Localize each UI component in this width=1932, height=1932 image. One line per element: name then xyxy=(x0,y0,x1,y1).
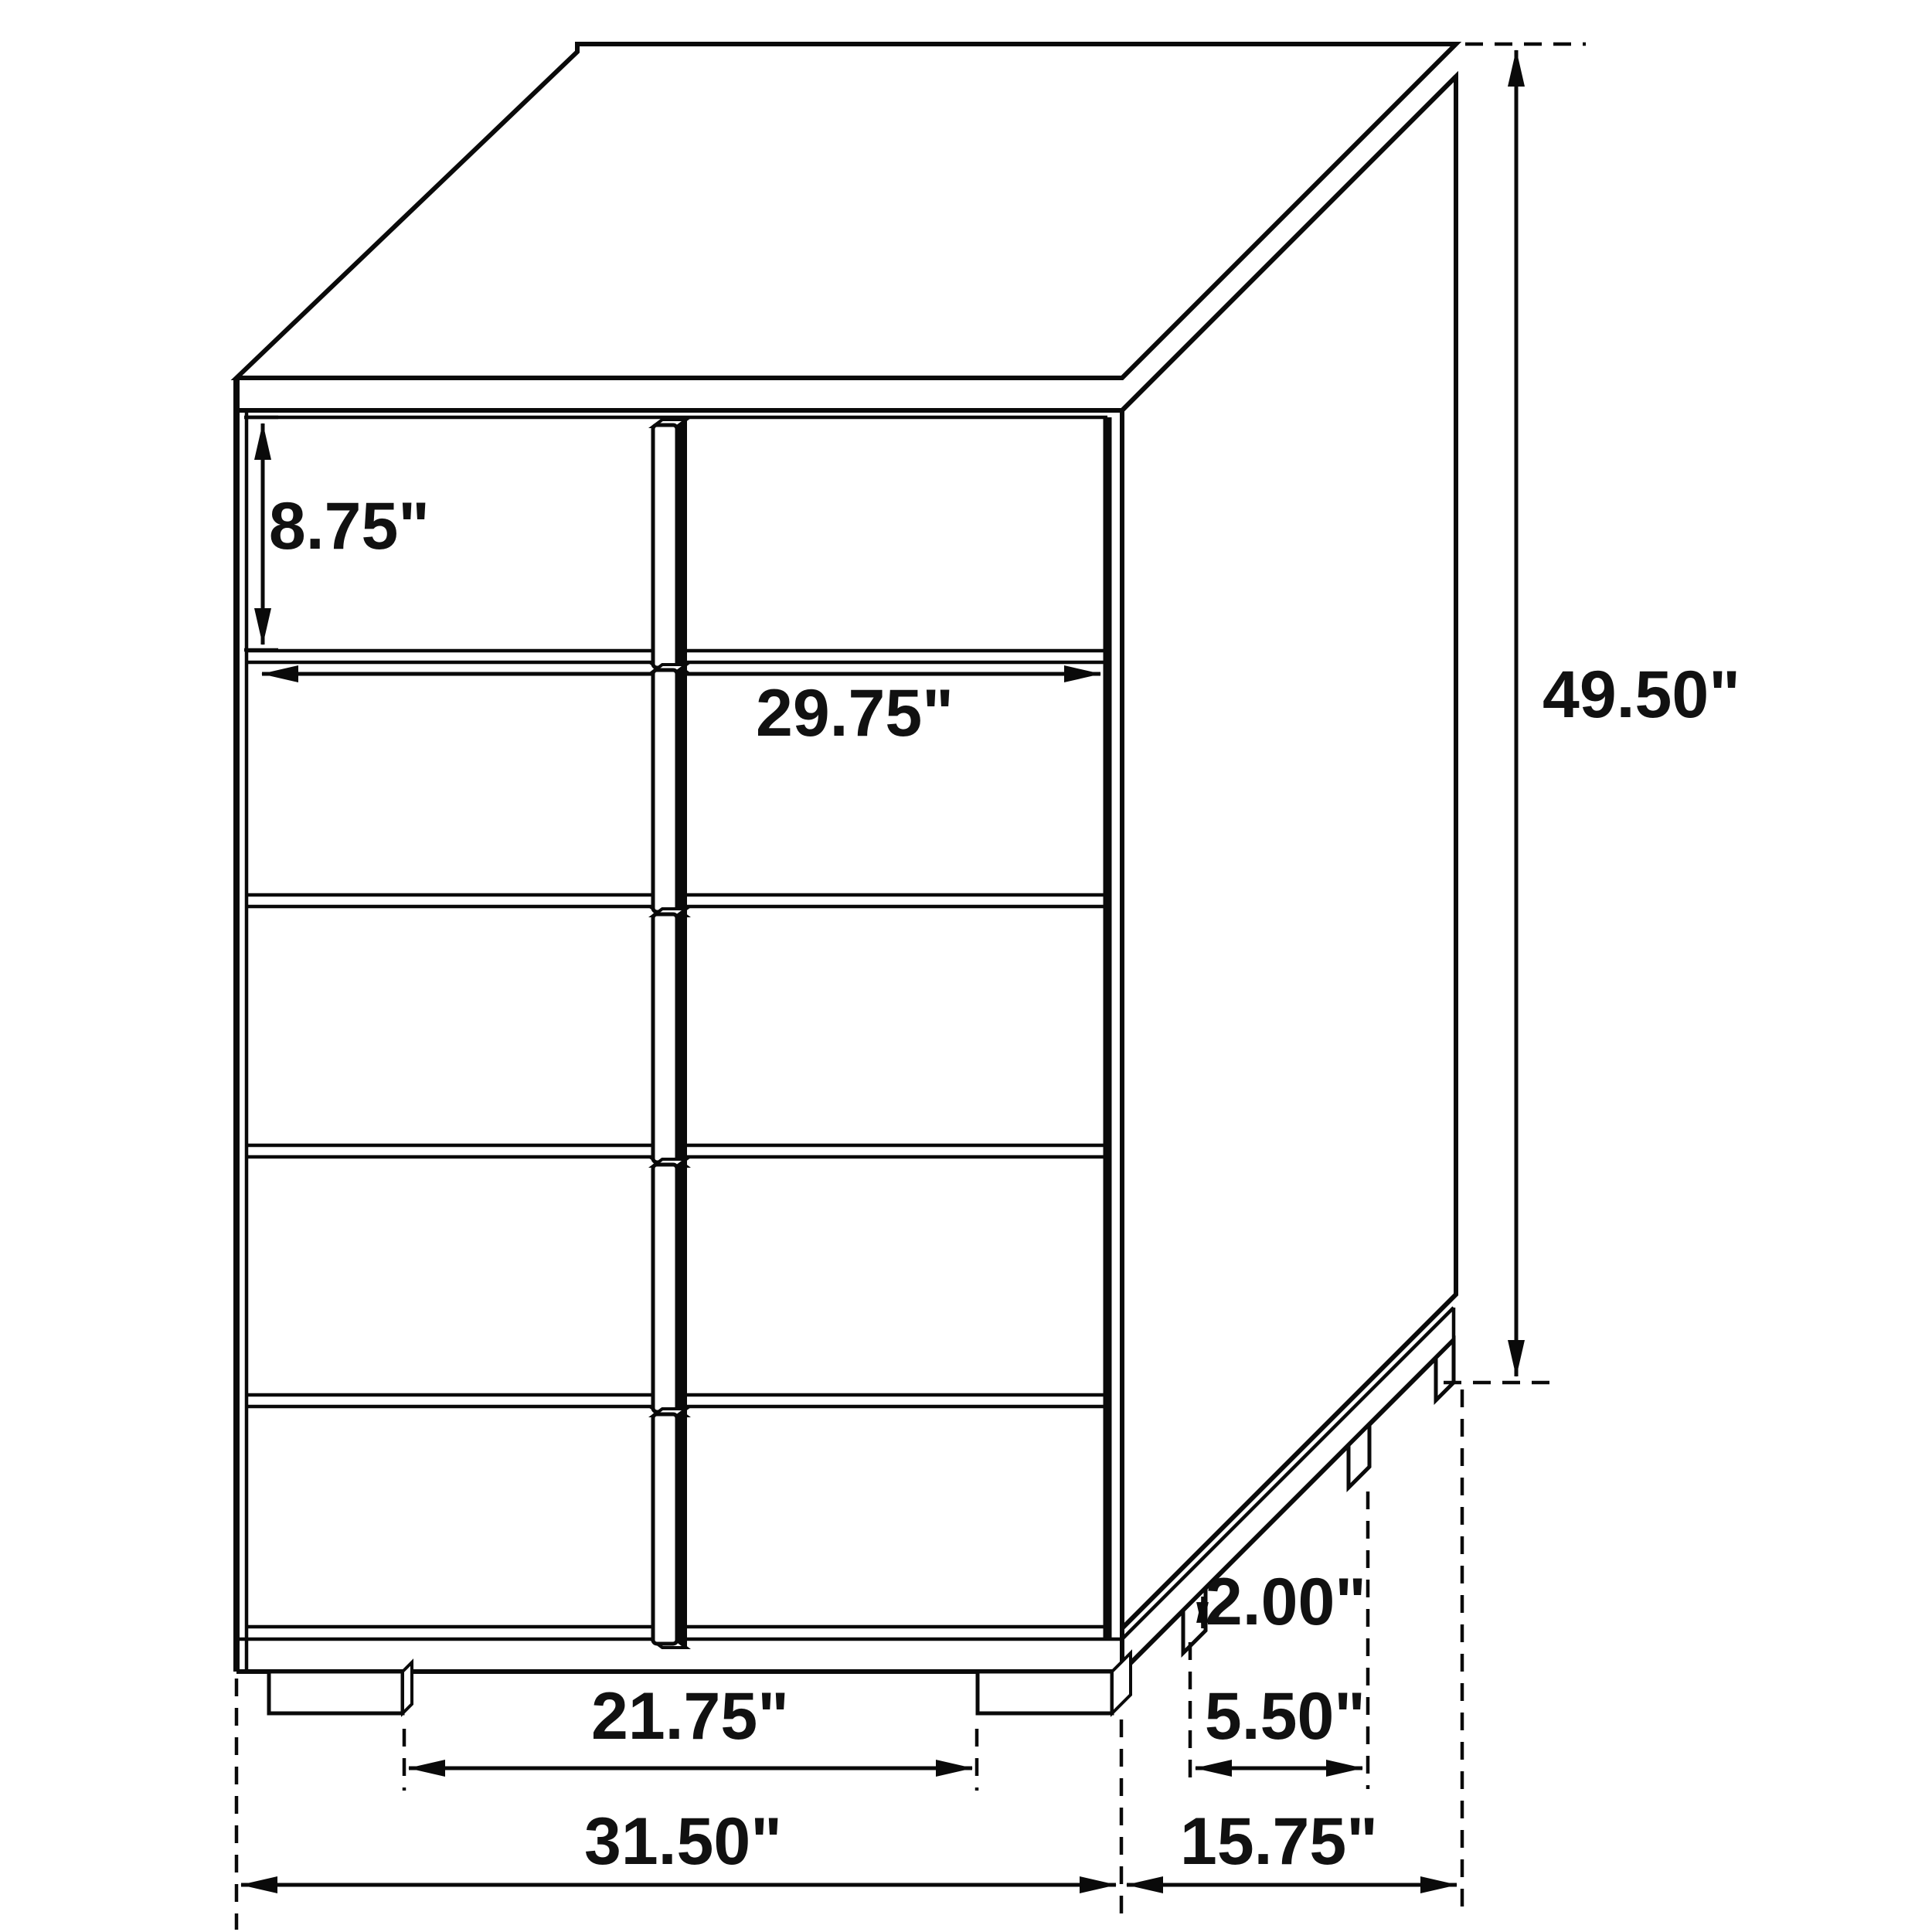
drawer-handle-2 xyxy=(653,665,687,917)
dim-front-leg-spacing-label: 21.75" xyxy=(591,1679,789,1753)
front-right-leg xyxy=(978,1672,1112,1713)
dim-overall-width-label: 31.50" xyxy=(584,1804,782,1879)
background xyxy=(0,0,1932,1932)
drawer-handle-3 xyxy=(653,909,687,1167)
dim-leg-height-label: 2.00" xyxy=(1206,1565,1366,1639)
dim-side-leg-spacing-label: 5.50" xyxy=(1205,1679,1366,1753)
dim-leg-height: 2.00" xyxy=(1202,1565,1366,1639)
drawer-handle-5 xyxy=(653,1409,687,1648)
dim-depth-label: 15.75" xyxy=(1180,1804,1378,1879)
dim-drawer-height-label: 8.75" xyxy=(269,489,430,563)
dim-drawer-width-label: 29.75" xyxy=(756,676,954,750)
chest-dimension-diagram: 29.75" xyxy=(0,0,1932,1932)
drawer-handles xyxy=(653,420,687,1648)
diagram-canvas: 29.75" xyxy=(0,0,1932,1932)
dim-overall-height-label: 49.50" xyxy=(1543,658,1740,732)
front-left-leg xyxy=(269,1672,403,1713)
drawer-handle-1 xyxy=(653,420,687,672)
drawer-handle-4 xyxy=(653,1159,687,1417)
front-left-leg-side xyxy=(403,1662,412,1713)
